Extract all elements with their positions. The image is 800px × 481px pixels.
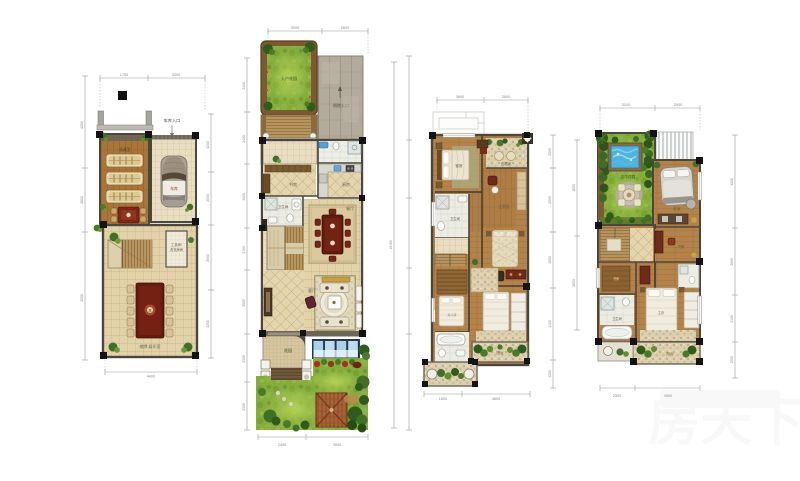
svg-text:3200: 3200 bbox=[206, 320, 210, 328]
svg-text:洗衣房间: 洗衣房间 bbox=[170, 247, 183, 252]
svg-text:4200: 4200 bbox=[80, 121, 84, 129]
svg-text:入户花园: 入户花园 bbox=[281, 75, 297, 81]
svg-text:书房: 书房 bbox=[613, 276, 619, 281]
svg-text:1700: 1700 bbox=[120, 73, 128, 77]
svg-text:3000: 3000 bbox=[242, 193, 246, 201]
svg-text:3600: 3600 bbox=[456, 95, 464, 99]
svg-text:卫生间: 卫生间 bbox=[612, 316, 622, 321]
svg-text:2400: 2400 bbox=[278, 443, 286, 447]
svg-text:餐厅: 餐厅 bbox=[346, 205, 354, 211]
svg-text:2100: 2100 bbox=[730, 315, 734, 323]
svg-text:2800: 2800 bbox=[80, 196, 84, 204]
svg-text:棋牌,娱乐室: 棋牌,娱乐室 bbox=[139, 343, 160, 349]
svg-text:4200: 4200 bbox=[80, 294, 84, 302]
svg-text:客厅: 客厅 bbox=[308, 287, 316, 293]
svg-text:主卧室: 主卧室 bbox=[498, 204, 510, 209]
svg-text:4200: 4200 bbox=[206, 141, 210, 149]
svg-text:衣帽间: 衣帽间 bbox=[501, 161, 512, 166]
svg-text:2500: 2500 bbox=[548, 148, 552, 156]
svg-text:厨房: 厨房 bbox=[342, 181, 350, 187]
svg-text:卧室: 卧室 bbox=[673, 206, 681, 211]
svg-text:2900: 2900 bbox=[674, 103, 682, 107]
svg-text:书房: 书房 bbox=[678, 244, 685, 249]
svg-text:1200: 1200 bbox=[548, 370, 552, 378]
svg-text:空中花园: 空中花园 bbox=[621, 174, 636, 179]
svg-text:1200: 1200 bbox=[730, 356, 734, 364]
svg-text:书房: 书房 bbox=[289, 181, 297, 187]
svg-text:3000: 3000 bbox=[333, 443, 341, 447]
svg-text:2600: 2600 bbox=[502, 95, 510, 99]
svg-text:阳台: 阳台 bbox=[496, 350, 504, 355]
svg-text:1500: 1500 bbox=[439, 397, 447, 401]
svg-text:客房: 客房 bbox=[455, 163, 463, 168]
svg-text:卫生间: 卫生间 bbox=[278, 204, 289, 209]
svg-text:2900: 2900 bbox=[730, 258, 734, 266]
svg-text:3000: 3000 bbox=[291, 26, 299, 30]
svg-text:4600: 4600 bbox=[572, 184, 576, 192]
svg-text:收藏室: 收藏室 bbox=[119, 147, 131, 152]
svg-text:2000: 2000 bbox=[206, 194, 210, 202]
svg-text:4600: 4600 bbox=[572, 279, 576, 287]
svg-text:3200: 3200 bbox=[172, 73, 180, 77]
svg-text:4400: 4400 bbox=[147, 375, 155, 379]
svg-text:4000: 4000 bbox=[730, 178, 734, 186]
svg-text:3000: 3000 bbox=[242, 299, 246, 307]
svg-text:2300: 2300 bbox=[242, 355, 246, 363]
svg-text:车库: 车库 bbox=[170, 186, 178, 191]
svg-text:2300: 2300 bbox=[242, 403, 246, 411]
svg-text:2400: 2400 bbox=[242, 135, 246, 143]
svg-text:2800: 2800 bbox=[548, 256, 552, 264]
svg-text:2900: 2900 bbox=[548, 196, 552, 204]
svg-text:双人床: 双人床 bbox=[447, 312, 456, 317]
svg-text:3100: 3100 bbox=[622, 103, 630, 107]
svg-text:主卧: 主卧 bbox=[658, 310, 665, 315]
svg-text:15100: 15100 bbox=[389, 240, 393, 249]
svg-text:4100: 4100 bbox=[548, 320, 552, 328]
svg-text:2400: 2400 bbox=[242, 82, 246, 90]
svg-text:车库入口: 车库入口 bbox=[164, 117, 181, 124]
svg-text:卫生间: 卫生间 bbox=[450, 216, 461, 221]
svg-text:2100: 2100 bbox=[242, 246, 246, 254]
svg-text:2600: 2600 bbox=[341, 26, 349, 30]
svg-text:工具间/: 工具间/ bbox=[171, 242, 182, 247]
svg-text:花园: 花园 bbox=[284, 347, 292, 353]
svg-text:阳台: 阳台 bbox=[666, 351, 674, 356]
svg-text:2300: 2300 bbox=[613, 394, 621, 398]
svg-text:3000: 3000 bbox=[206, 254, 210, 262]
svg-text:4600: 4600 bbox=[492, 397, 500, 401]
